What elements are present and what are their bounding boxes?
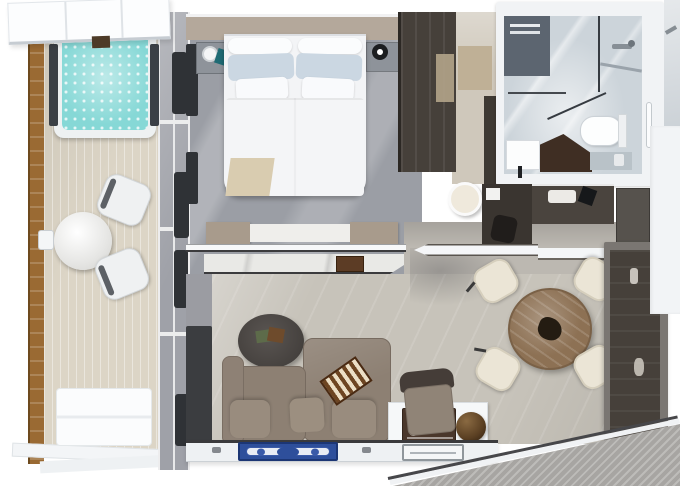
right-exterior-wall	[650, 126, 680, 314]
media-wall-handle	[634, 358, 644, 376]
double-bed	[224, 34, 366, 196]
blue-ornate-rug	[238, 442, 338, 461]
shower-glass-panel	[508, 92, 566, 94]
fridge-cabinet	[616, 188, 650, 246]
bolster-pillow	[228, 38, 292, 54]
partition-end-cap-right	[350, 222, 398, 244]
sofa-cushion	[230, 400, 270, 438]
serving-tray	[402, 444, 464, 461]
tissue-box	[614, 154, 624, 166]
faucet	[518, 166, 522, 178]
vanity-sink	[506, 140, 540, 170]
armchair	[399, 367, 460, 438]
lamp-top	[377, 49, 383, 55]
partition-rail	[186, 244, 406, 252]
media-wall-handle	[630, 268, 638, 284]
wardrobe-shelf	[436, 54, 454, 102]
towel-tray	[548, 190, 576, 203]
toilet-tank	[618, 114, 627, 148]
balcony-canopy	[7, 0, 170, 45]
hot-tub-water	[62, 34, 148, 130]
canopy-seam	[120, 0, 123, 38]
partition-marble-counter	[204, 254, 404, 274]
sofa-cushion	[332, 400, 376, 438]
bronze-decor-sphere	[456, 412, 486, 442]
marble-strip-top-right	[664, 0, 680, 128]
curtain-bunch	[172, 52, 187, 114]
suite-floor-plan	[0, 0, 680, 486]
balcony-mat	[56, 388, 152, 446]
rug-corner-motif	[257, 448, 265, 455]
drawer-knob	[362, 447, 371, 453]
round-pouf	[448, 182, 482, 216]
hot-tub-side-panel-right	[150, 44, 159, 126]
bedroom-curtain	[186, 152, 198, 204]
desk-paper	[486, 188, 500, 200]
rug-inner-field	[246, 447, 330, 456]
beige-throw	[225, 158, 274, 196]
shower-glass-panel	[598, 16, 600, 92]
window-column	[186, 326, 212, 446]
wood-tray	[336, 256, 364, 272]
tray-handle-line	[410, 452, 456, 454]
canopy-seam	[64, 2, 67, 40]
pointed-wall-segment	[414, 244, 538, 256]
armchair-seat	[403, 384, 456, 437]
bolster-pillow	[298, 38, 362, 54]
brown-book	[267, 327, 285, 344]
shower-head-nozzle	[628, 40, 635, 47]
drawer-knob	[212, 447, 221, 453]
entry-runner-mat	[458, 46, 492, 90]
glass-frame-divider	[160, 120, 188, 124]
vanity-side-ledge	[590, 152, 632, 170]
canopy-support-block	[92, 36, 110, 49]
partition-end-cap-left	[206, 222, 250, 244]
balcony-wall-sconce	[38, 230, 54, 250]
rug-corner-motif	[311, 448, 319, 455]
towel-rack	[510, 24, 540, 34]
partition-middle-shelf	[250, 224, 350, 242]
bedside-lamp-right	[372, 44, 388, 60]
sofa-cushion	[289, 397, 325, 433]
rug-medallion	[277, 446, 299, 457]
window-wall-segment	[186, 274, 212, 328]
hot-tub-side-panel-left	[49, 44, 58, 126]
toilet	[580, 116, 622, 146]
glass-frame-divider	[160, 332, 188, 336]
